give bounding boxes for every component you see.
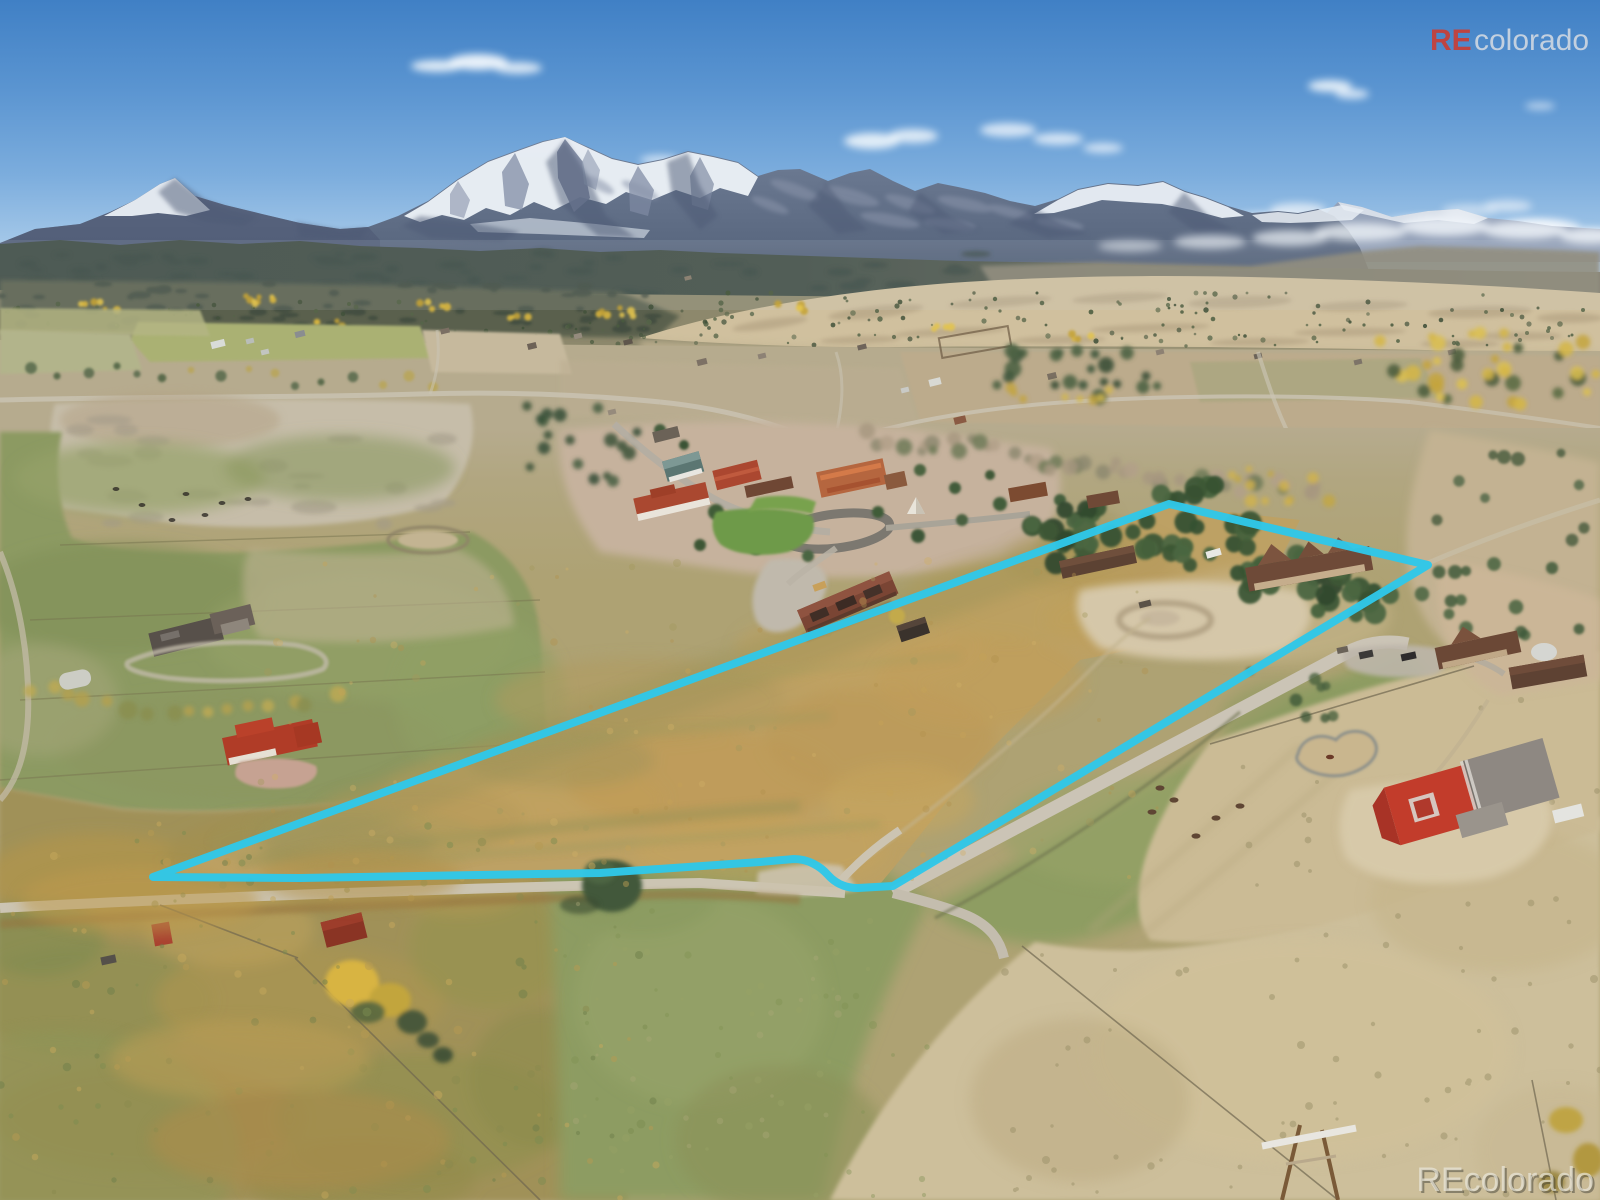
svg-text:RE: RE — [1430, 24, 1472, 57]
svg-text:REcolorado: REcolorado — [1416, 1161, 1594, 1199]
svg-text:colorado: colorado — [1474, 24, 1589, 57]
